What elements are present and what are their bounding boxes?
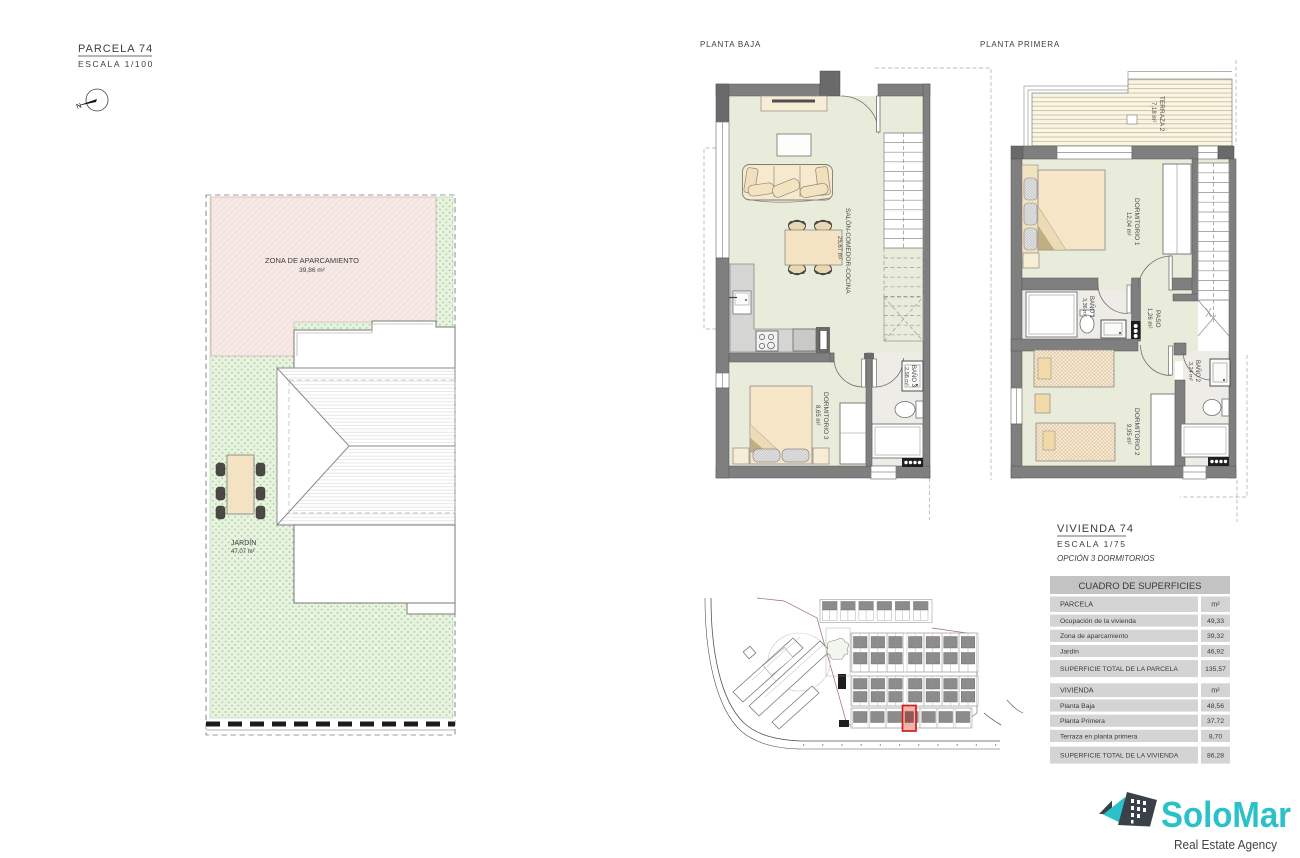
svg-text:BAÑO 3: BAÑO 3 bbox=[910, 365, 917, 388]
svg-text:ESCALA 1/75: ESCALA 1/75 bbox=[1057, 539, 1127, 549]
svg-text:PASO: PASO bbox=[1154, 310, 1161, 328]
svg-text:DORMITORIO 3: DORMITORIO 3 bbox=[822, 392, 829, 440]
svg-text:TERRAZA 2: TERRAZA 2 bbox=[1158, 96, 1165, 132]
svg-text:VIVIENDA: VIVIENDA bbox=[1060, 686, 1094, 695]
svg-text:DORMITORIO 2: DORMITORIO 2 bbox=[1133, 408, 1140, 456]
svg-text:Real Estate Agency: Real Estate Agency bbox=[1174, 837, 1277, 852]
svg-text:PLANTA PRIMERA: PLANTA PRIMERA bbox=[980, 40, 1060, 49]
svg-text:3,36 m²: 3,36 m² bbox=[1081, 298, 1087, 317]
svg-text:39,32: 39,32 bbox=[1207, 633, 1224, 640]
svg-text:PLANTA BAJA: PLANTA BAJA bbox=[700, 40, 761, 49]
svg-text:m²: m² bbox=[1211, 686, 1220, 695]
svg-text:ESCALA 1/100: ESCALA 1/100 bbox=[78, 59, 154, 69]
svg-text:SALÓN-COMEDOR-COCINA: SALÓN-COMEDOR-COCINA bbox=[844, 208, 853, 294]
svg-text:39,86 m²: 39,86 m² bbox=[299, 267, 325, 274]
svg-text:SUPERFICIE TOTAL DE LA PARCELA: SUPERFICIE TOTAL DE LA PARCELA bbox=[1060, 666, 1178, 673]
svg-text:Terraza en planta primera: Terraza en planta primera bbox=[1060, 733, 1138, 740]
svg-text:OPCIÓN 3 DORMITORIOS: OPCIÓN 3 DORMITORIOS bbox=[1057, 554, 1155, 563]
svg-text:Zona de aparcamiento: Zona de aparcamiento bbox=[1060, 633, 1128, 640]
svg-text:48,56: 48,56 bbox=[1207, 703, 1224, 710]
svg-text:25,67 m²: 25,67 m² bbox=[836, 236, 842, 260]
svg-text:2,98 m²: 2,98 m² bbox=[903, 367, 909, 386]
svg-text:8,65 m²: 8,65 m² bbox=[814, 405, 820, 425]
svg-text:8,70: 8,70 bbox=[1209, 733, 1222, 740]
svg-text:3,24 m²: 3,24 m² bbox=[1187, 362, 1193, 381]
svg-text:VIVIENDA 74: VIVIENDA 74 bbox=[1057, 523, 1134, 535]
svg-text:86,28: 86,28 bbox=[1207, 753, 1224, 760]
svg-text:46,92: 46,92 bbox=[1207, 648, 1224, 655]
svg-text:SoloMar: SoloMar bbox=[1161, 794, 1291, 835]
svg-text:135,57: 135,57 bbox=[1205, 666, 1226, 673]
svg-text:m²: m² bbox=[1211, 600, 1220, 609]
svg-text:Planta Baja: Planta Baja bbox=[1060, 703, 1095, 710]
svg-text:12,04 m²: 12,04 m² bbox=[1125, 212, 1131, 236]
svg-text:ZONA DE APARCAMIENTO: ZONA DE APARCAMIENTO bbox=[265, 256, 359, 265]
svg-text:37.72: 37.72 bbox=[1207, 718, 1224, 725]
svg-text:SUPERFICIE TOTAL DE LA VIVIEND: SUPERFICIE TOTAL DE LA VIVIENDA bbox=[1060, 753, 1179, 760]
svg-text:BAÑO 1: BAÑO 1 bbox=[1088, 296, 1095, 319]
svg-text:PARCELA: PARCELA bbox=[1060, 600, 1093, 609]
svg-text:9,95 m²: 9,95 m² bbox=[1125, 424, 1131, 444]
svg-text:DORMITORIO 1: DORMITORIO 1 bbox=[1133, 198, 1140, 246]
svg-text:Ocupación de la vivienda: Ocupación de la vivienda bbox=[1060, 618, 1136, 625]
svg-text:PARCELA 74: PARCELA 74 bbox=[78, 43, 153, 55]
svg-text:Jardín: Jardín bbox=[1060, 648, 1079, 655]
svg-text:CUADRO DE SUPERFICIES: CUADRO DE SUPERFICIES bbox=[1079, 581, 1202, 592]
svg-text:Planta Primera: Planta Primera bbox=[1060, 718, 1105, 725]
svg-text:BAÑO 2: BAÑO 2 bbox=[1194, 360, 1201, 383]
svg-text:49,33: 49,33 bbox=[1207, 618, 1224, 625]
svg-text:7,18 m²: 7,18 m² bbox=[1150, 102, 1156, 122]
svg-text:47,07 m²: 47,07 m² bbox=[231, 549, 255, 555]
svg-text:1,26 m²: 1,26 m² bbox=[1146, 308, 1152, 328]
svg-text:JARDÍN: JARDÍN bbox=[231, 538, 256, 547]
